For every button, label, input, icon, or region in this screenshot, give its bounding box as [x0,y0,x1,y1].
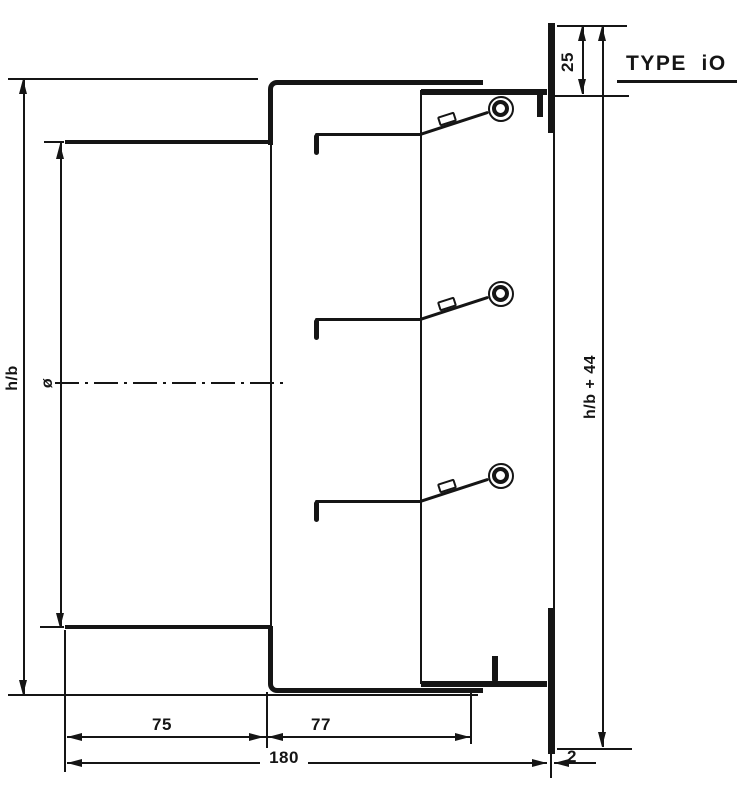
flange-bottom-section [548,608,555,754]
arrow-left-icon [67,733,82,741]
body-top-extension-line [8,78,258,80]
damper-blade-bottom [310,457,525,529]
frame-bottom-blade-stop [492,656,498,683]
arrow-up-icon [598,26,606,41]
overall-height-label: h/b + 44 [582,342,600,432]
spigot-front-extension-line [64,630,66,772]
flange-offset-label: 25 [558,37,578,87]
arrow-up-icon [578,26,586,41]
arrow-down-icon [578,79,586,94]
arrow-up-icon [19,79,27,94]
arrow-down-icon [598,732,606,747]
total-depth-label: 180 [262,748,306,768]
total-depth-dimension-line-right [308,762,547,764]
diameter-dimension-line [60,143,62,628]
arrow-down-icon [19,680,27,695]
total-depth-dimension-line-left [67,762,260,764]
flange-mid-edge [553,130,555,610]
blade-arm [315,133,422,136]
duct-height-label: h/b [4,353,22,403]
overall-height-dimension-line [602,26,604,747]
title-underline [617,80,737,83]
pivot-tube-inner-ring [492,100,509,117]
body-bottom-extension-line [8,694,478,696]
blade-arm [315,500,422,503]
arrow-up-icon [56,144,64,159]
blade-end-hook [314,134,319,155]
spigot-depth-label: 75 [132,715,192,735]
body-rear-extension-line [470,690,472,744]
frame-top-return-lip [537,95,543,117]
body-depth-label: 77 [291,715,351,735]
flange-thickness-label: 2 [564,747,580,767]
body-front-wall [270,143,272,627]
duct-height-dimension-line [23,79,25,695]
technical-drawing-damper-section: TYPE iO h/b ø 25 h/b + 44 75 77 180 2 [0,0,753,800]
arrow-down-icon [56,613,64,628]
spigot-top-wall [65,140,271,144]
frame-bottom-channel [421,681,547,687]
pivot-tube-inner-ring [492,467,509,484]
arrow-right-icon [532,759,547,767]
pivot-tube-inner-ring [492,285,509,302]
spigot-bottom-wall [65,625,271,629]
arrow-right-icon [249,733,264,741]
damper-blade-top [310,90,525,162]
arrow-left-icon [67,759,82,767]
flange-top-extension-line [557,25,627,27]
blade-arm [315,318,422,321]
frame-inner-panel [420,90,422,684]
blade-end-hook [314,501,319,522]
arrow-left-icon [268,733,283,741]
frame-top-extension-line [551,95,629,97]
flange-top-section [548,23,555,133]
duct-centerline [55,382,288,384]
damper-blade-middle [310,275,525,347]
drawing-title: TYPE iO [626,52,727,76]
blade-end-hook [314,319,319,340]
arrow-right-icon [455,733,470,741]
flange-extension-line [550,752,552,778]
